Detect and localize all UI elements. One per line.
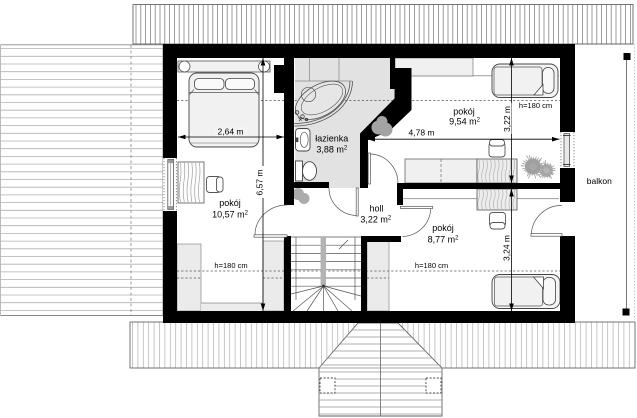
svg-text:3,88 m2: 3,88 m2 [316, 145, 348, 155]
svg-text:pokój: pokój [453, 107, 475, 117]
svg-text:holl: holl [369, 203, 383, 213]
svg-text:10,57 m2: 10,57 m2 [212, 210, 249, 220]
svg-text:3,22 m: 3,22 m [502, 106, 512, 132]
svg-text:4,78 m: 4,78 m [409, 128, 435, 138]
svg-text:balkon: balkon [587, 176, 612, 186]
svg-text:pokój: pokój [219, 198, 241, 208]
svg-text:pokój: pokój [432, 223, 454, 233]
svg-text:2,64 m: 2,64 m [218, 127, 244, 137]
svg-text:h=180 cm: h=180 cm [214, 261, 247, 270]
svg-text:3,24 m: 3,24 m [502, 235, 512, 261]
svg-text:8,77 m2: 8,77 m2 [428, 235, 460, 245]
svg-text:6,57 m: 6,57 m [255, 170, 265, 196]
svg-text:9,54 m2: 9,54 m2 [449, 117, 481, 127]
svg-text:łazienka: łazienka [315, 133, 348, 143]
svg-text:h=180 cm: h=180 cm [415, 261, 448, 270]
svg-text:3,22 m2: 3,22 m2 [360, 215, 392, 225]
svg-text:h=180 cm: h=180 cm [519, 101, 552, 110]
